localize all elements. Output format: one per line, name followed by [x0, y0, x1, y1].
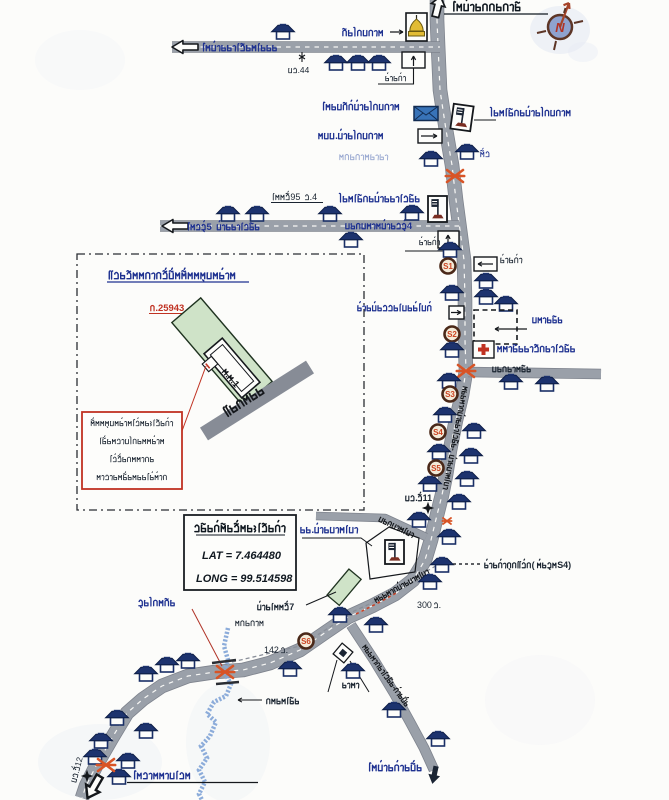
svg-text:.25943: .25943: [155, 303, 184, 314]
svg-text:300: 300: [417, 600, 432, 610]
svg-text:S5: S5: [431, 464, 441, 473]
svg-text:11: 11: [423, 493, 432, 503]
svg-text:S1: S1: [443, 262, 453, 271]
svg-text:.: .: [439, 600, 441, 610]
svg-text:S2: S2: [447, 330, 457, 339]
svg-text:N: N: [555, 20, 565, 35]
svg-text:95: 95: [290, 192, 300, 202]
svg-text:LAT = 7.464480: LAT = 7.464480: [202, 550, 282, 562]
svg-text:.4: .4: [310, 192, 317, 202]
svg-text:.: .: [415, 493, 417, 503]
svg-text:5: 5: [206, 222, 211, 233]
svg-text:S6: S6: [301, 637, 311, 646]
svg-text:S4: S4: [433, 428, 443, 437]
svg-text:.44: .44: [298, 65, 310, 75]
svg-text:142: 142: [264, 645, 279, 655]
svg-text:.: .: [335, 131, 338, 142]
svg-text:S4): S4): [557, 560, 571, 570]
svg-text:4: 4: [407, 221, 413, 232]
svg-text:(: (: [532, 560, 535, 570]
svg-text:.: .: [311, 525, 314, 536]
svg-text:.: .: [286, 645, 288, 655]
svg-text:S3: S3: [445, 390, 455, 399]
svg-text:LONG = 99.514598: LONG = 99.514598: [196, 573, 293, 585]
svg-text:7: 7: [289, 602, 294, 612]
